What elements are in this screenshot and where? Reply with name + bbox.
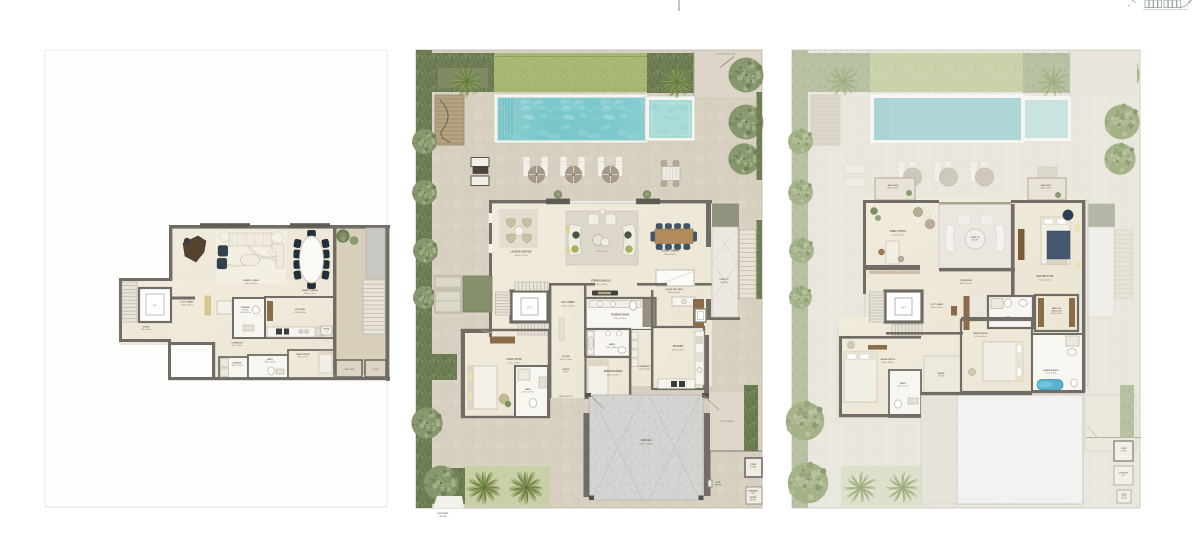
- svg-text:BELOW: BELOW: [972, 240, 979, 242]
- svg-text:CORRIDOR: CORRIDOR: [960, 280, 972, 282]
- svg-text:3.90 x 2.60 m: 3.90 x 2.60 m: [1051, 313, 1063, 315]
- svg-text:3.60 x 3.65 m: 3.60 x 3.65 m: [607, 374, 620, 376]
- svg-text:STORE: STORE: [372, 369, 379, 371]
- svg-text:FAMILY STUDY: FAMILY STUDY: [890, 230, 907, 233]
- svg-text:BALCONY: BALCONY: [1041, 184, 1052, 187]
- svg-text:FAMILY DINING: FAMILY DINING: [302, 289, 318, 292]
- svg-text:FOYER: FOYER: [562, 356, 570, 358]
- svg-text:3.60 x 1.90 m: 3.60 x 1.90 m: [1040, 188, 1052, 190]
- svg-text:OPEN TO: OPEN TO: [719, 279, 729, 281]
- svg-text:ROOM: ROOM: [1121, 451, 1127, 453]
- svg-text:4.00 x 2.70 m: 4.00 x 2.70 m: [562, 305, 575, 307]
- svg-text:KITCHEN: KITCHEN: [295, 309, 305, 311]
- svg-text:4.00 x 2.60 m: 4.00 x 2.60 m: [668, 292, 680, 294]
- svg-text:LOUNGE SEATING: LOUNGE SEATING: [510, 251, 531, 254]
- svg-text:2.00 x 1.75 m: 2.00 x 1.75 m: [898, 386, 909, 388]
- svg-text:FORMAL MAJLIS: FORMAL MAJLIS: [591, 280, 611, 283]
- svg-text:3.30 x 4.75 m: 3.30 x 4.75 m: [304, 293, 316, 295]
- svg-text:FORMAL DINING: FORMAL DINING: [661, 250, 680, 253]
- svg-text:MAIN ENTRY: MAIN ENTRY: [559, 395, 573, 398]
- svg-text:2.60 x 1.90 m: 2.60 x 1.90 m: [887, 188, 899, 190]
- svg-text:3.20 x 1.20 m: 3.20 x 1.20 m: [232, 365, 243, 367]
- svg-text:1.95 x 1.75 m: 1.95 x 1.75 m: [522, 392, 534, 394]
- svg-text:METER: METER: [440, 516, 448, 518]
- svg-text:ELECTRIC: ELECTRIC: [438, 513, 449, 515]
- svg-text:GAS &: GAS &: [1121, 493, 1127, 496]
- svg-text:LIFT: LIFT: [153, 305, 158, 307]
- svg-text:4.30 x 3.80 m: 4.30 x 3.80 m: [664, 254, 677, 256]
- svg-text:LIFT LOBBY: LIFT LOBBY: [931, 304, 944, 306]
- svg-text:5.05 x 4.70 m: 5.05 x 4.70 m: [892, 234, 905, 236]
- svg-text:4.70 x 3.50 m: 4.70 x 3.50 m: [294, 312, 306, 314]
- svg-text:3.60 x 3.05 m: 3.60 x 3.05 m: [882, 362, 894, 364]
- svg-text:BEDROOM 02: BEDROOM 02: [973, 333, 988, 335]
- svg-text:MASTER SUITE: MASTER SUITE: [1036, 275, 1054, 278]
- svg-text:SHOW KITCHEN: SHOW KITCHEN: [665, 289, 683, 291]
- svg-text:2.60 x 2.00 m: 2.60 x 2.00 m: [240, 312, 251, 314]
- svg-text:ROOM: ROOM: [751, 467, 757, 469]
- svg-text:DRIVER'S ROOM: DRIVER'S ROOM: [604, 371, 623, 373]
- svg-text:BELOW: BELOW: [721, 282, 728, 284]
- svg-text:GAS: GAS: [716, 481, 721, 484]
- svg-text:COURTYARD: COURTYARD: [721, 420, 734, 423]
- svg-text:LIFT: LIFT: [901, 308, 906, 310]
- svg-text:6.95 x 5.30 m: 6.95 x 5.30 m: [594, 284, 607, 286]
- svg-text:7.00 x 4.75 m: 7.00 x 4.75 m: [245, 283, 257, 285]
- svg-text:UNIT: UNIT: [1122, 475, 1126, 477]
- svg-text:WARDROBE: WARDROBE: [1051, 310, 1062, 313]
- svg-text:BATH: BATH: [609, 343, 615, 346]
- svg-text:BALCONY: BALCONY: [888, 184, 899, 187]
- svg-text:CORRIDOR: CORRIDOR: [231, 343, 243, 345]
- svg-text:5.85 x 2.60 m: 5.85 x 2.60 m: [181, 304, 193, 306]
- svg-text:UNIT: UNIT: [751, 493, 755, 495]
- svg-text:5.50 x 1.20 m: 5.50 x 1.20 m: [231, 345, 243, 347]
- svg-text:2.60 x 1.85 m: 2.60 x 1.85 m: [606, 347, 618, 349]
- svg-text:LIFT LOBBY: LIFT LOBBY: [561, 302, 575, 304]
- svg-text:POWDER ROOM: POWDER ROOM: [611, 315, 629, 317]
- svg-text:CORRIDOR: CORRIDOR: [638, 366, 650, 368]
- svg-text:METER: METER: [1121, 498, 1128, 500]
- svg-text:1.8 M BOUNDARY WALL: 1.8 M BOUNDARY WALL: [716, 53, 736, 56]
- svg-text:4.00 x 2.70 m: 4.00 x 2.70 m: [514, 255, 527, 257]
- svg-text:ROOM: ROOM: [938, 376, 944, 378]
- svg-text:2.40 x 1.75 m: 2.40 x 1.75 m: [298, 357, 309, 359]
- svg-text:BEDROOM 03: BEDROOM 03: [881, 359, 896, 361]
- svg-text:6.00 x 4.10 m: 6.00 x 4.10 m: [1039, 279, 1052, 281]
- svg-text:HEAT PUMP: HEAT PUMP: [344, 368, 356, 371]
- svg-text:FAMILY LIVING: FAMILY LIVING: [243, 279, 259, 282]
- svg-text:2.65 x 1.55 m: 2.65 x 1.55 m: [265, 362, 276, 364]
- svg-text:GUEST SUITE: GUEST SUITE: [506, 359, 522, 361]
- svg-text:4.00 x 2.60 m: 4.00 x 2.60 m: [931, 307, 943, 309]
- svg-text:MASTER BATH: MASTER BATH: [1044, 369, 1059, 372]
- svg-text:GARAGE: GARAGE: [641, 439, 652, 442]
- svg-text:4.70 x 4.50 m: 4.70 x 4.50 m: [974, 336, 986, 338]
- svg-text:3.75 x 3.20 m: 3.75 x 3.20 m: [1045, 373, 1057, 375]
- svg-text:4.15 x 1.05 m: 4.15 x 1.05 m: [638, 369, 650, 371]
- svg-text:BUTLER: BUTLER: [324, 329, 330, 331]
- svg-text:LIFT LOBBY: LIFT LOBBY: [181, 302, 194, 304]
- svg-text:5.90 x 3.25 m: 5.90 x 3.25 m: [672, 349, 685, 351]
- svg-text:2.60 x 2.35 m: 2.60 x 2.35 m: [560, 359, 572, 361]
- svg-text:3.30 x 1.05 m: 3.30 x 1.05 m: [140, 329, 152, 331]
- svg-text:METER: METER: [750, 499, 757, 501]
- svg-text:6.10 x 7.50 m: 6.10 x 7.50 m: [639, 443, 652, 445]
- svg-text:3.25 x 1.95 m: 3.25 x 1.95 m: [614, 318, 627, 320]
- svg-text:6.05 x 1.05 m: 6.05 x 1.05 m: [960, 283, 972, 285]
- svg-text:BATH: BATH: [525, 388, 531, 391]
- svg-text:METER: METER: [715, 485, 722, 487]
- svg-text:KITCHEN: KITCHEN: [673, 346, 684, 348]
- svg-text:LIFT: LIFT: [527, 308, 532, 310]
- svg-text:3.70 x 3.30 m: 3.70 x 3.30 m: [508, 362, 521, 364]
